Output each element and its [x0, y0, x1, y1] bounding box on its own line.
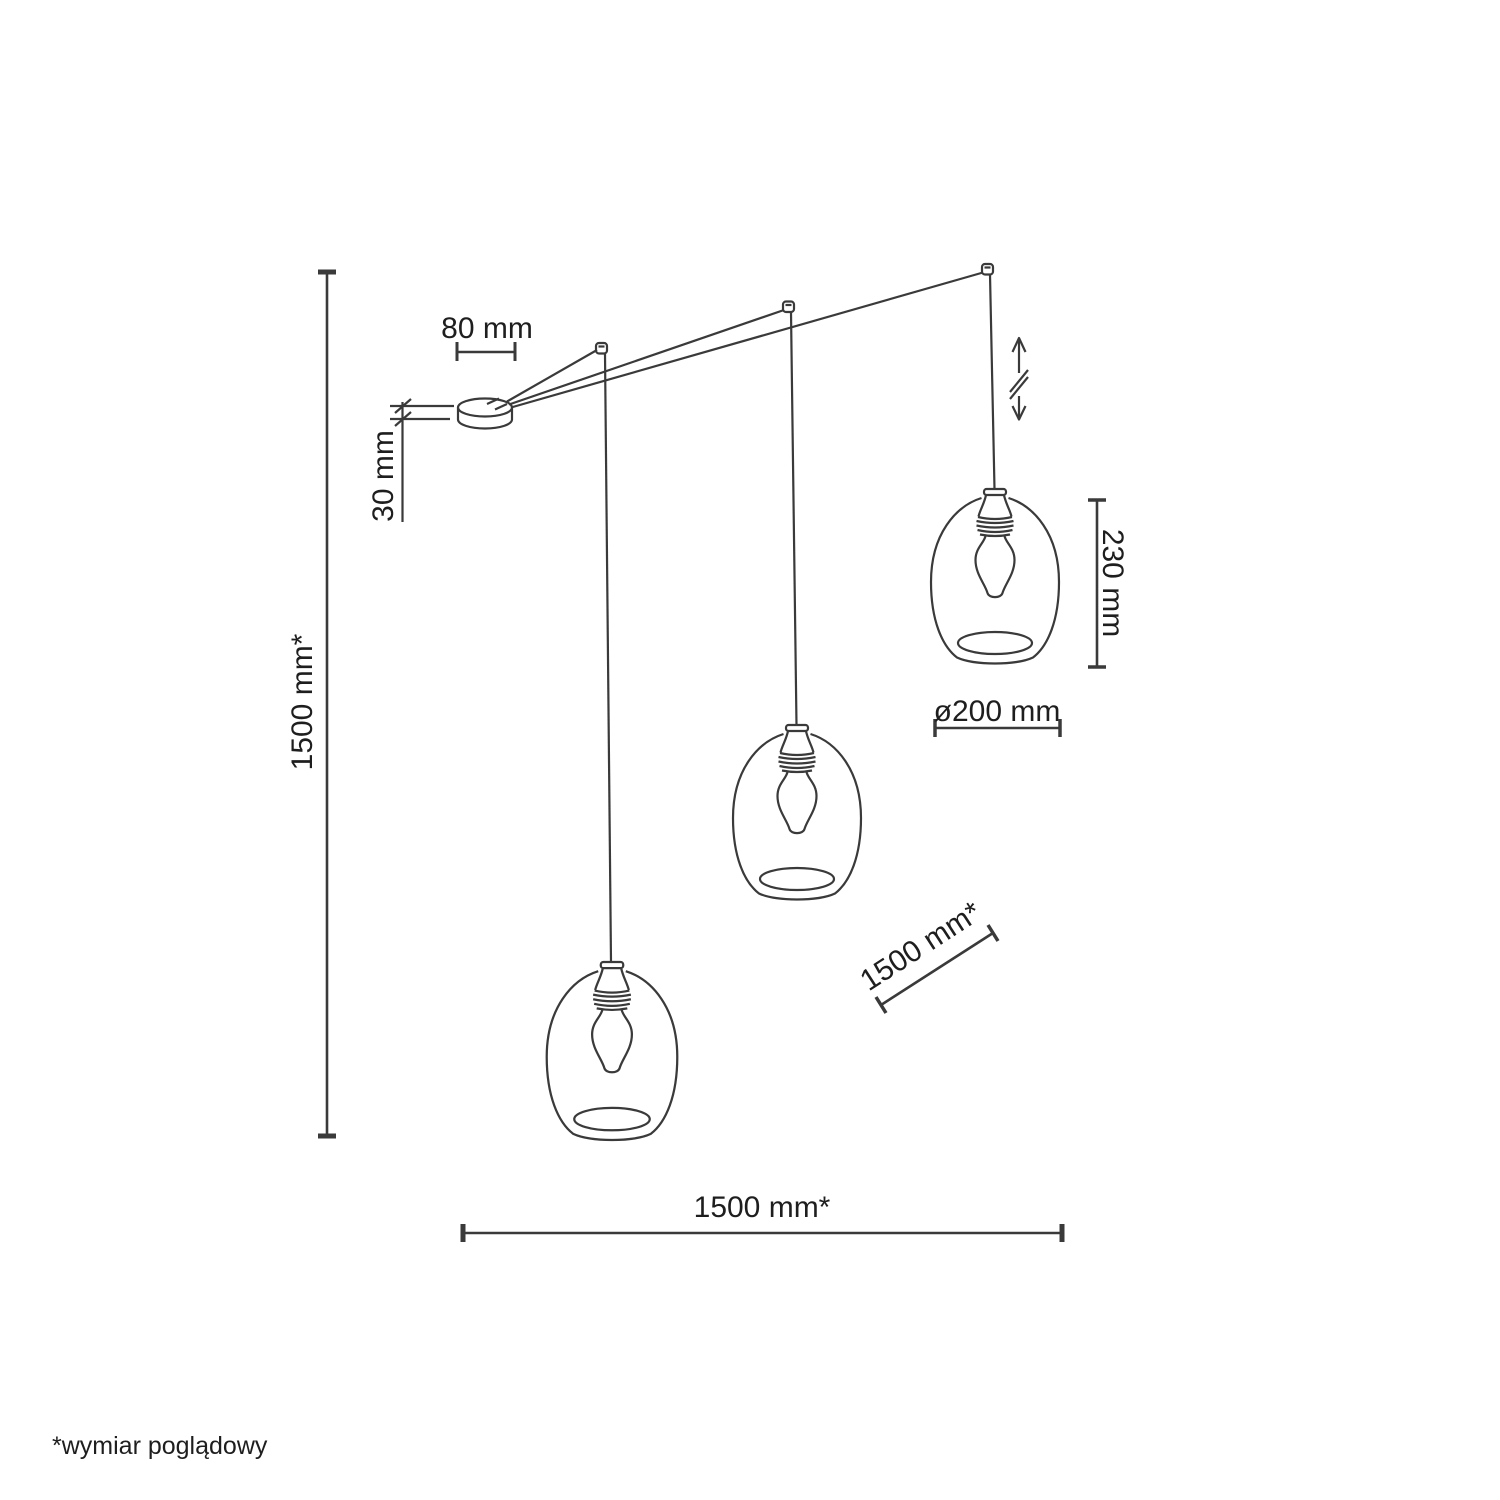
drop-cord-middle — [791, 312, 797, 725]
footnote: *wymiar poglądowy — [52, 1432, 267, 1461]
pendant-middle — [733, 725, 861, 900]
ceiling-hook-3 — [982, 264, 993, 275]
dim-label-span-width: 1500 mm* — [694, 1193, 831, 1223]
dim-label-shade-diameter: ø200 mm — [934, 697, 1061, 727]
ceiling-canopy — [458, 399, 512, 429]
ceiling-hook-2 — [783, 302, 794, 313]
height-adjust-arrow-icon — [1010, 338, 1028, 420]
cord-to-hook-1 — [507, 350, 597, 402]
dim-total-height — [318, 272, 336, 1136]
drop-cords — [605, 275, 995, 963]
cord-attachment-mark — [495, 404, 507, 410]
ceiling-hooks — [596, 264, 993, 354]
drop-cord-left — [605, 354, 611, 962]
drop-cord-right — [990, 275, 995, 490]
dim-label-canopy-height: 30 mm — [369, 430, 399, 522]
dim-label-shade-height: 230 mm — [1097, 529, 1127, 637]
cord-to-hook-2 — [509, 310, 784, 405]
pendant-right — [931, 489, 1059, 664]
ceiling-hook-1 — [596, 343, 607, 354]
dim-label-total-height: 1500 mm* — [288, 634, 318, 771]
diagram-linework — [0, 0, 1500, 1500]
suspension-cords — [507, 273, 983, 408]
cord-to-hook-3 — [511, 273, 983, 408]
dim-span-width — [463, 1224, 1062, 1242]
dim-label-canopy-width: 80 mm — [441, 314, 533, 344]
dimension-drawing-canvas: 80 mm 30 mm 1500 mm* 230 mm ø200 mm 1500… — [0, 0, 1500, 1500]
pendant-left — [547, 962, 678, 1140]
